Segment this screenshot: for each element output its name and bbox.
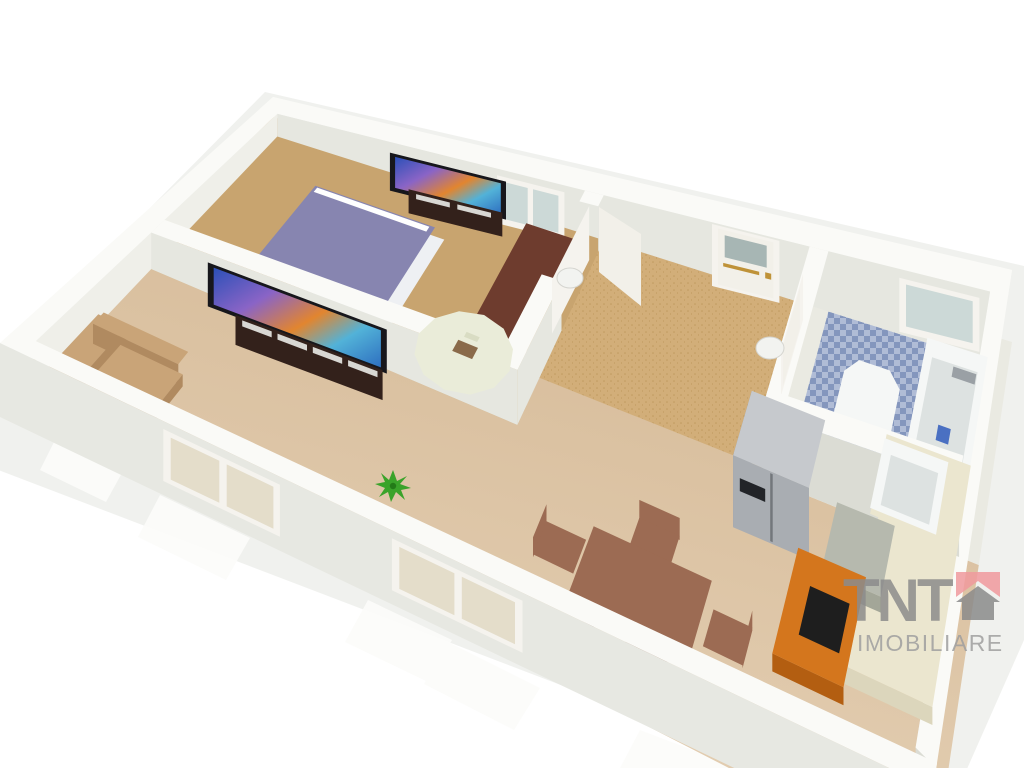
wall-lamp — [756, 337, 784, 359]
floorplan-render: TNT IMOBILIARE — [0, 0, 1024, 768]
logo-brand-text: TNT — [843, 572, 951, 629]
logo-subtitle-text: IMOBILIARE — [843, 630, 1004, 657]
bedroom-window-pane — [503, 182, 528, 225]
fridge-door-split — [770, 473, 773, 542]
wall-lamp — [557, 268, 583, 288]
bedroom-window-pane — [533, 189, 558, 232]
watermark-logo: TNT IMOBILIARE — [843, 572, 1004, 657]
logo-house-icon — [954, 572, 1000, 625]
